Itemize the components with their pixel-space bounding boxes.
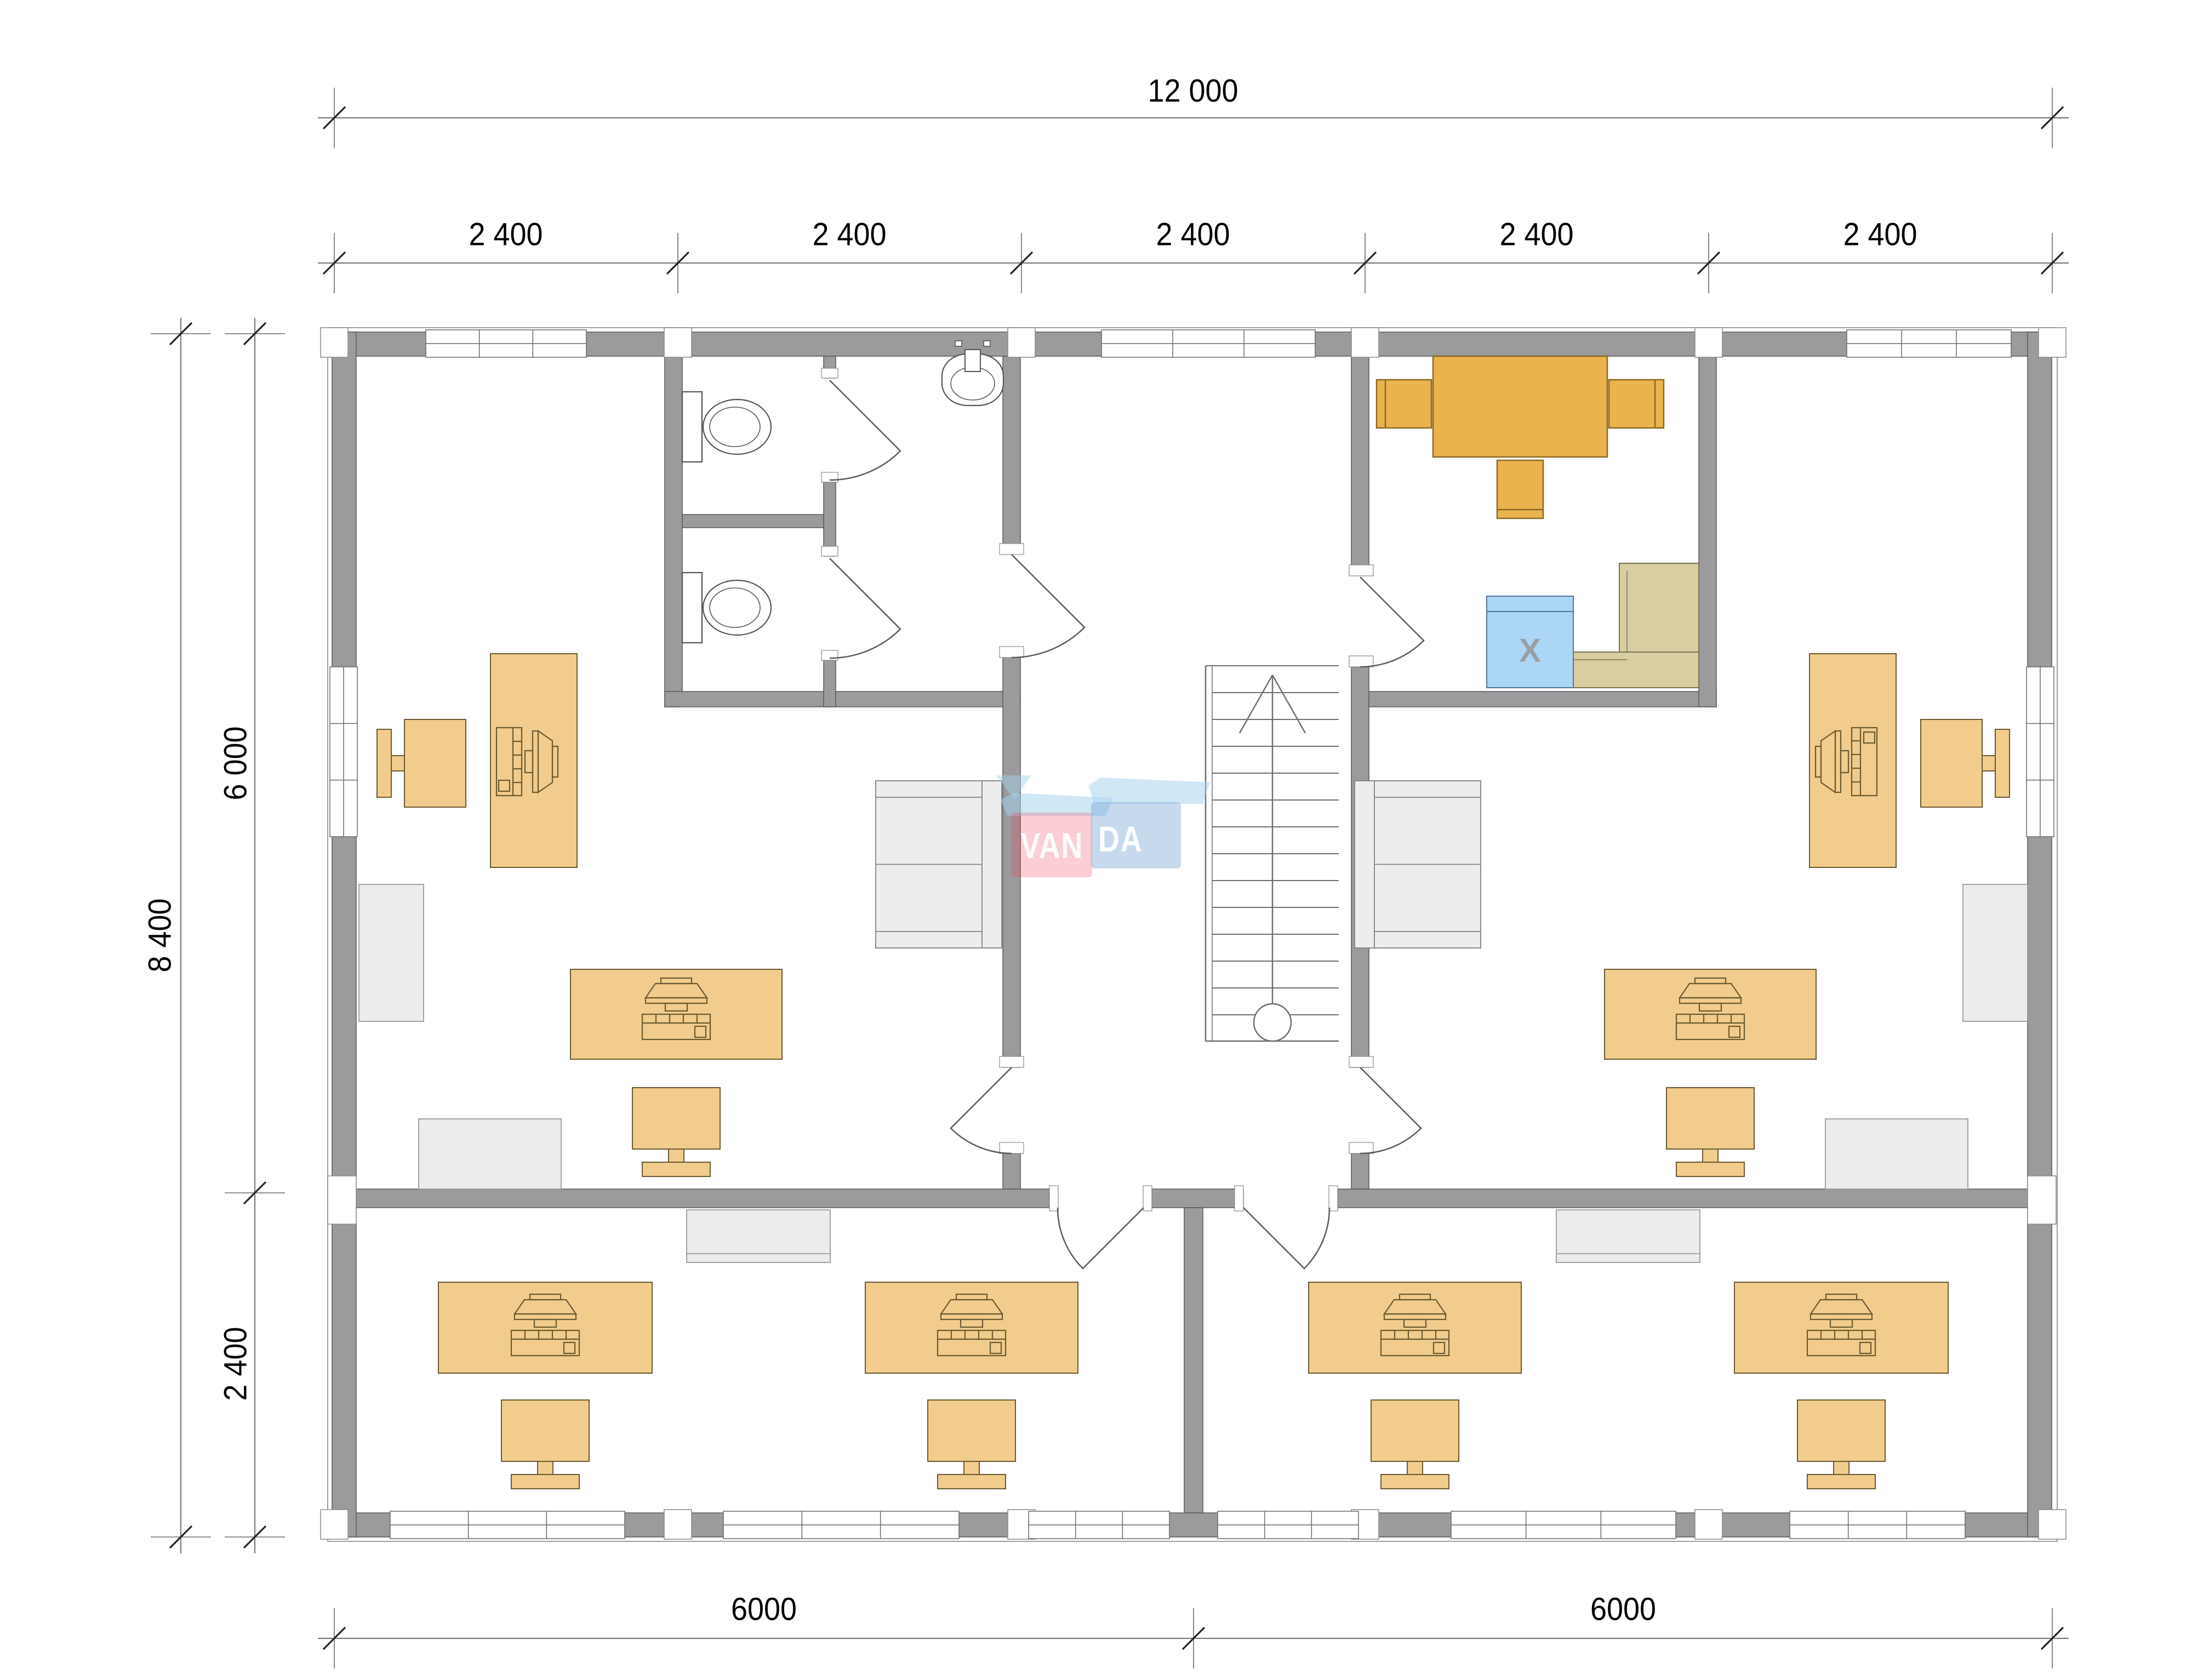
door-office-right: [1360, 1067, 1421, 1153]
floor-plan-canvas: X 12 000 2 400 2 400 2 400 2 400 2 400 8…: [0, 0, 2192, 1680]
bottom-divider-wall: [1184, 1208, 1203, 1513]
stall-wall-b: [824, 482, 836, 556]
chair-right-center: [1666, 1088, 1754, 1176]
dim-module-label-3: 2 400: [1156, 216, 1230, 253]
desk-left-window: [490, 654, 577, 867]
dim-total-width-label: 12 000: [1148, 73, 1238, 110]
kitchen-appliance: X: [1487, 596, 1573, 688]
bathroom-left-wall: [665, 356, 682, 707]
kitchen-chair-left: [1377, 380, 1431, 428]
bathroom-bottom-wall: [665, 692, 1020, 707]
side-table-right-lower: [1556, 1210, 1700, 1262]
hall-right-wall-upper: [1351, 356, 1369, 575]
side-table-left-upper: [419, 1119, 561, 1189]
dim-module-label-5: 2 400: [1843, 216, 1917, 253]
svg-text:X: X: [1519, 632, 1541, 669]
mid-wall-center: [1152, 1189, 1243, 1208]
hall-left-wall-upper: [1003, 356, 1020, 553]
vanda-logo: VAN DA: [996, 775, 1199, 901]
dim-lower-height-label: 2 400: [218, 1327, 254, 1401]
sofa-left: [876, 781, 1002, 948]
cabinet-left-wall: [359, 884, 424, 1021]
door-kitchen: [1360, 577, 1424, 667]
logo-text-van: VAN: [1020, 825, 1083, 866]
kitchen-counter: [1573, 563, 1699, 688]
hall-left-wall-lower: [1003, 1153, 1020, 1189]
mid-wall-left: [356, 1189, 1049, 1208]
logo-text-da: DA: [1098, 818, 1143, 860]
cabinet-right-wall: [1963, 884, 2028, 1021]
stall-wall-c: [824, 660, 836, 707]
kitchen-bottom-wall: [1369, 692, 1716, 707]
kitchen-chair-right: [1609, 380, 1664, 428]
kitchen-table: [1433, 356, 1607, 457]
kitchen-chair-bottom: [1497, 460, 1543, 518]
desk-bottom-3: [1309, 1282, 1521, 1373]
dim-bottom-left-label: 6000: [731, 1591, 797, 1628]
dim-total-height-label: 8 400: [142, 899, 179, 973]
dim-upper-height-label: 6 000: [218, 727, 254, 801]
kitchen-right-wall: [1699, 356, 1716, 707]
staircase: [1206, 666, 1339, 1041]
exterior-wall-right: [2028, 332, 2052, 1537]
door-stall-1: [830, 380, 900, 480]
mid-wall-right: [1338, 1189, 2028, 1208]
dim-module-label-2: 2 400: [813, 216, 887, 253]
hall-right-wall-lower: [1351, 1153, 1369, 1189]
side-table-left-lower: [687, 1210, 830, 1262]
desk-bottom-2: [865, 1282, 1078, 1373]
door-room-right: [1243, 1208, 1329, 1268]
door-stall-2: [830, 558, 900, 658]
stall-divider-wall: [682, 515, 824, 528]
desk-left-center: [570, 969, 782, 1059]
desk-right-window: [1809, 654, 1896, 867]
chair-left-center: [632, 1088, 720, 1176]
chair-right-window: [1921, 719, 2010, 807]
chair-bottom-1: [501, 1400, 589, 1489]
door-room-left: [1058, 1208, 1144, 1268]
toilet-2: [682, 573, 771, 643]
chair-left-window: [377, 719, 466, 807]
side-table-right-upper: [1825, 1119, 1968, 1189]
sofa-right: [1355, 781, 1481, 948]
chair-bottom-3: [1371, 1400, 1459, 1489]
door-washroom: [1012, 555, 1084, 658]
exterior-wall-left: [332, 332, 356, 1537]
dim-module-label-4: 2 400: [1500, 216, 1574, 253]
dim-module-label-1: 2 400: [469, 216, 543, 253]
dim-bottom-right-label: 6000: [1590, 1591, 1656, 1628]
door-office-left: [951, 1067, 1012, 1153]
desk-bottom-4: [1734, 1282, 1948, 1373]
chair-bottom-2: [928, 1400, 1015, 1489]
desk-bottom-1: [438, 1282, 652, 1373]
chair-bottom-4: [1797, 1400, 1885, 1489]
desk-right-center: [1605, 969, 1816, 1059]
toilet-1: [682, 392, 771, 462]
logo-flap-right: [1088, 778, 1210, 804]
